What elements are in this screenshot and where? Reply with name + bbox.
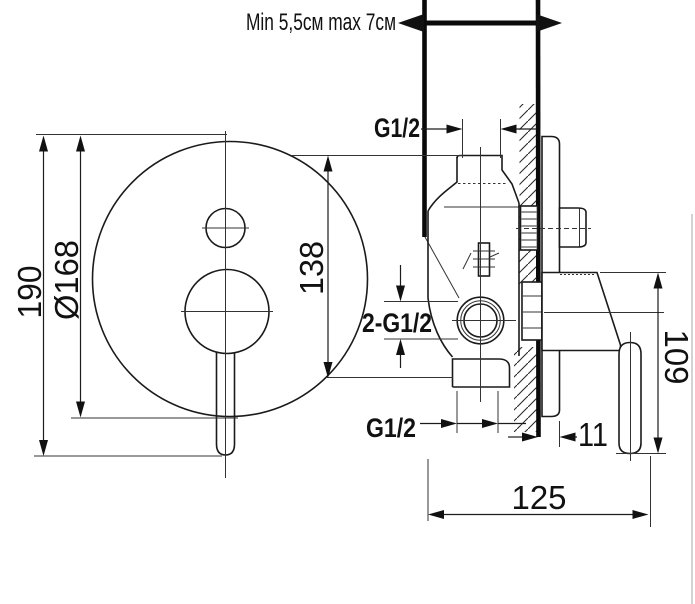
dimension-handle-height: 109 <box>600 273 695 454</box>
drawing-canvas: Min 5,5см max 7см 190 Ø168 138 <box>0 0 695 604</box>
front-view <box>93 131 368 478</box>
label-125: 125 <box>512 479 567 516</box>
label-thread-top: G1/2 <box>374 113 420 143</box>
dimension-plate-diameter: Ø168 <box>48 136 238 419</box>
dimension-top-thread: G1/2 <box>374 113 537 158</box>
label-190: 190 <box>11 266 48 319</box>
cartridge-stem <box>522 282 542 340</box>
handle-body-side <box>542 273 621 351</box>
label-109: 109 <box>658 330 695 385</box>
label-thread-bottom: G1/2 <box>366 413 416 443</box>
label-138: 138 <box>293 241 330 295</box>
depth-arrowhead-right <box>536 14 562 32</box>
dimension-bottom-thread: G1/2 <box>366 391 526 443</box>
wall-hatching <box>514 104 538 432</box>
wall-break-line <box>425 237 459 298</box>
label-168: Ø168 <box>48 240 85 320</box>
depth-arrowhead-left <box>398 14 424 32</box>
label-11: 11 <box>578 416 608 453</box>
dimension-outlet-spacing: 138 <box>291 156 462 379</box>
pipe-left-edge <box>428 157 457 211</box>
top-outlet-pipe <box>457 156 519 204</box>
depth-range-label: Min 5,5см max 7см <box>246 9 396 36</box>
depth-range-annotation: Min 5,5см max 7см <box>246 9 562 36</box>
side-inlet-port <box>452 147 516 402</box>
dimension-inlet-threads: 2-G1/2 <box>362 265 458 368</box>
technical-drawing: Min 5,5см max 7см 190 Ø168 138 <box>0 0 695 604</box>
hatch-upper <box>520 104 537 286</box>
dimension-overall-depth: 125 <box>428 456 651 527</box>
hatch-lower <box>514 347 538 432</box>
label-thread-side: 2-G1/2 <box>362 308 432 338</box>
dimension-overall-height: 190 <box>11 135 227 457</box>
